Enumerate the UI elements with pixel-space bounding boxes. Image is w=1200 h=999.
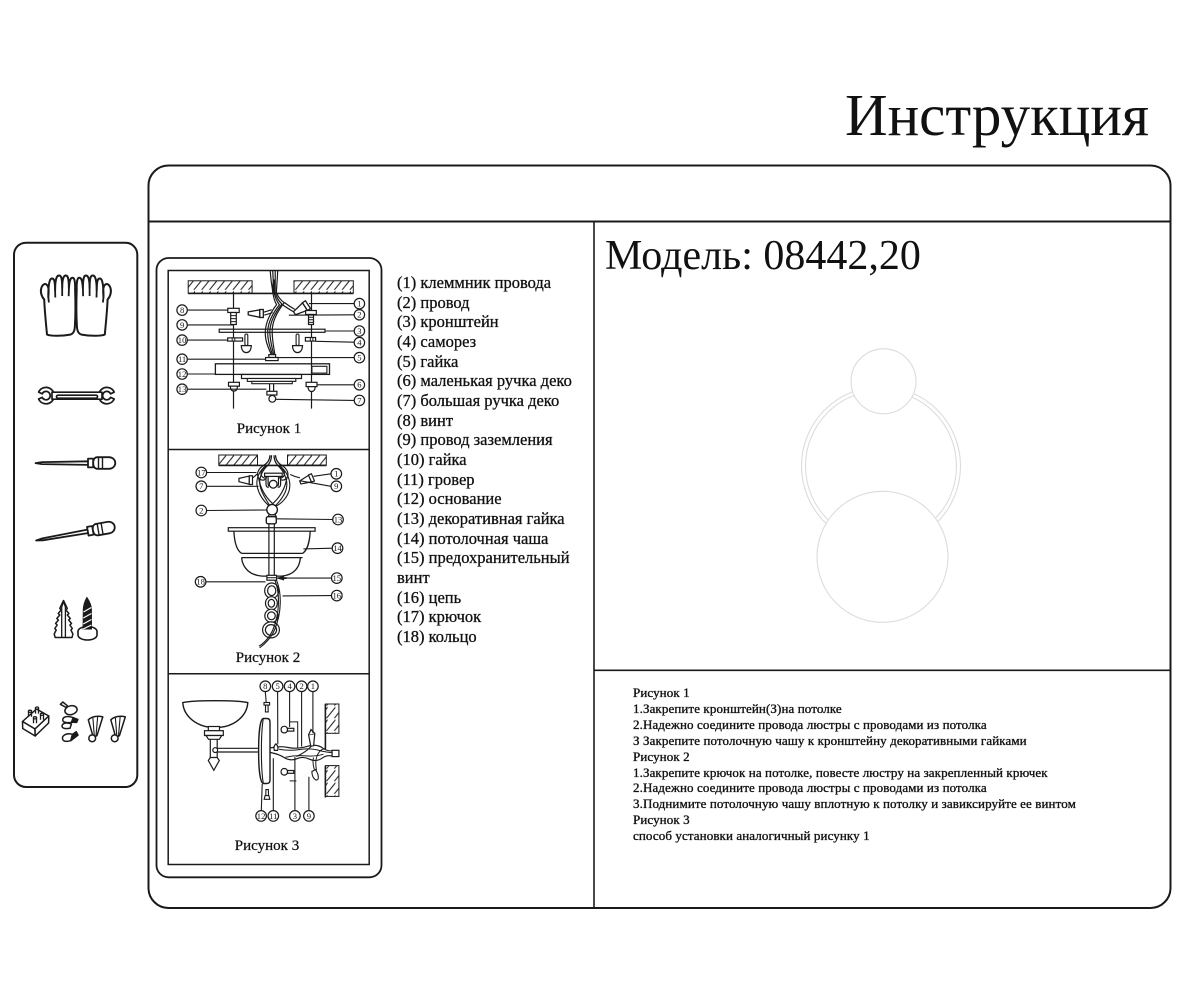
svg-text:2: 2 [357, 310, 361, 320]
svg-text:12: 12 [257, 811, 266, 821]
svg-text:8: 8 [263, 681, 267, 691]
svg-text:11: 11 [178, 354, 186, 364]
svg-text:2: 2 [199, 505, 203, 515]
svg-text:1: 1 [334, 469, 338, 479]
svg-text:17: 17 [197, 467, 206, 477]
svg-text:11: 11 [269, 811, 277, 821]
svg-text:13: 13 [178, 384, 187, 394]
svg-text:18: 18 [196, 577, 205, 587]
svg-text:2: 2 [299, 681, 303, 691]
svg-text:13: 13 [334, 514, 343, 524]
svg-text:4: 4 [287, 681, 292, 691]
svg-text:12: 12 [178, 369, 187, 379]
svg-text:10: 10 [178, 335, 187, 345]
svg-text:7: 7 [357, 395, 362, 405]
svg-text:16: 16 [333, 591, 342, 601]
svg-text:9: 9 [180, 320, 184, 330]
svg-text:4: 4 [357, 338, 362, 348]
svg-text:6: 6 [357, 380, 362, 390]
svg-text:14: 14 [333, 543, 342, 553]
svg-text:7: 7 [199, 481, 204, 491]
svg-text:15: 15 [333, 573, 342, 583]
svg-text:3: 3 [357, 326, 361, 336]
svg-text:5: 5 [275, 681, 279, 691]
svg-text:3: 3 [293, 811, 297, 821]
svg-text:9: 9 [307, 811, 311, 821]
svg-text:1: 1 [357, 299, 361, 309]
svg-text:5: 5 [357, 353, 361, 363]
svg-text:9: 9 [334, 481, 338, 491]
svg-text:1: 1 [311, 681, 315, 691]
svg-text:8: 8 [180, 305, 184, 315]
